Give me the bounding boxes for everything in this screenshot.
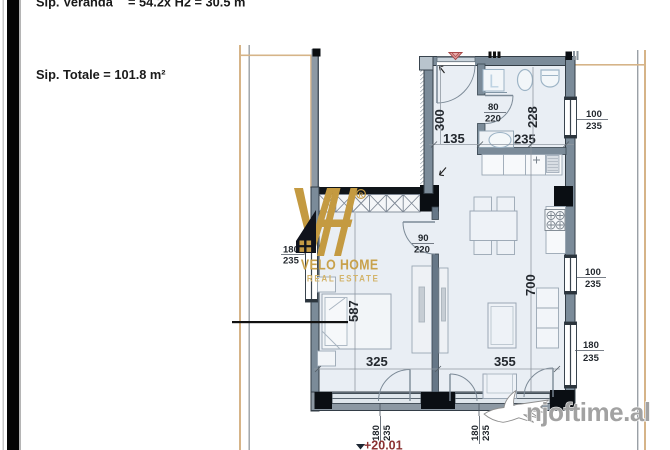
svg-text:355: 355	[494, 354, 516, 369]
svg-text:135: 135	[443, 131, 465, 146]
svg-text:Sip. Veranda: Sip. Veranda	[36, 0, 114, 10]
svg-text:90: 90	[418, 233, 429, 244]
svg-text:100: 100	[586, 109, 602, 120]
svg-text:R: R	[359, 193, 364, 199]
svg-text:180: 180	[583, 340, 599, 351]
svg-text:700: 700	[523, 274, 538, 296]
svg-text:235: 235	[481, 424, 492, 441]
svg-text:Sip. Totale = 101.8 m²: Sip. Totale = 101.8 m²	[36, 67, 166, 82]
svg-text:L: L	[489, 72, 499, 92]
svg-text:VELO HOME: VELO HOME	[301, 257, 379, 273]
svg-text:80: 80	[488, 102, 499, 113]
svg-text:300: 300	[432, 109, 447, 131]
svg-text:235: 235	[586, 121, 603, 132]
svg-text:= 54.2x H2 = 30.5 m: = 54.2x H2 = 30.5 m	[128, 0, 245, 10]
svg-text:njoftime.al: njoftime.al	[526, 397, 651, 427]
svg-text:220: 220	[485, 114, 501, 125]
svg-text:REAL ESTATE: REAL ESTATE	[307, 273, 380, 284]
svg-text:587: 587	[346, 300, 361, 322]
svg-text:+20.01: +20.01	[364, 439, 403, 450]
svg-text:100: 100	[585, 267, 601, 278]
svg-text:235: 235	[585, 279, 602, 290]
svg-text:325: 325	[366, 354, 388, 369]
svg-text:228: 228	[525, 106, 540, 128]
svg-text:235: 235	[283, 256, 300, 267]
svg-text:235: 235	[514, 132, 536, 147]
svg-text:235: 235	[583, 353, 600, 364]
svg-text:220: 220	[414, 245, 430, 256]
